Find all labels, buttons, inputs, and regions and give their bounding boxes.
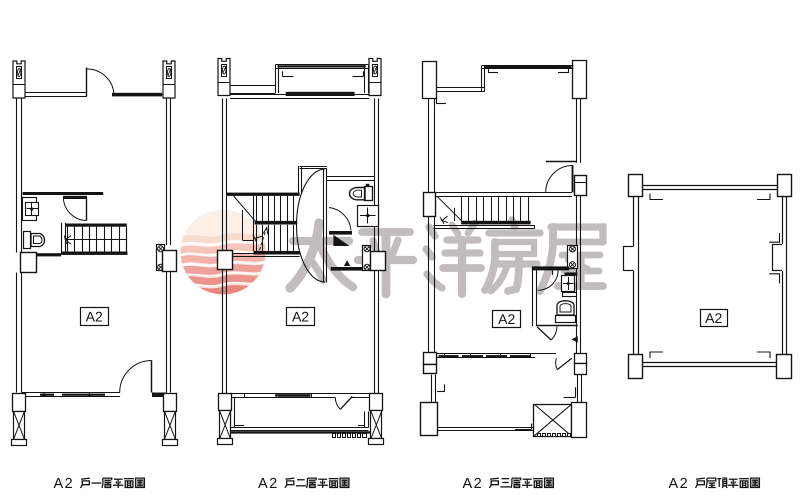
svg-text:A2: A2 (498, 311, 515, 327)
svg-text:A2: A2 (463, 476, 484, 492)
svg-text:A2: A2 (86, 309, 103, 325)
svg-text:A2: A2 (669, 476, 690, 492)
svg-text:A2: A2 (54, 476, 75, 492)
svg-text:A2: A2 (705, 310, 722, 326)
svg-text:A2: A2 (258, 476, 279, 492)
svg-text:A2: A2 (292, 309, 309, 325)
